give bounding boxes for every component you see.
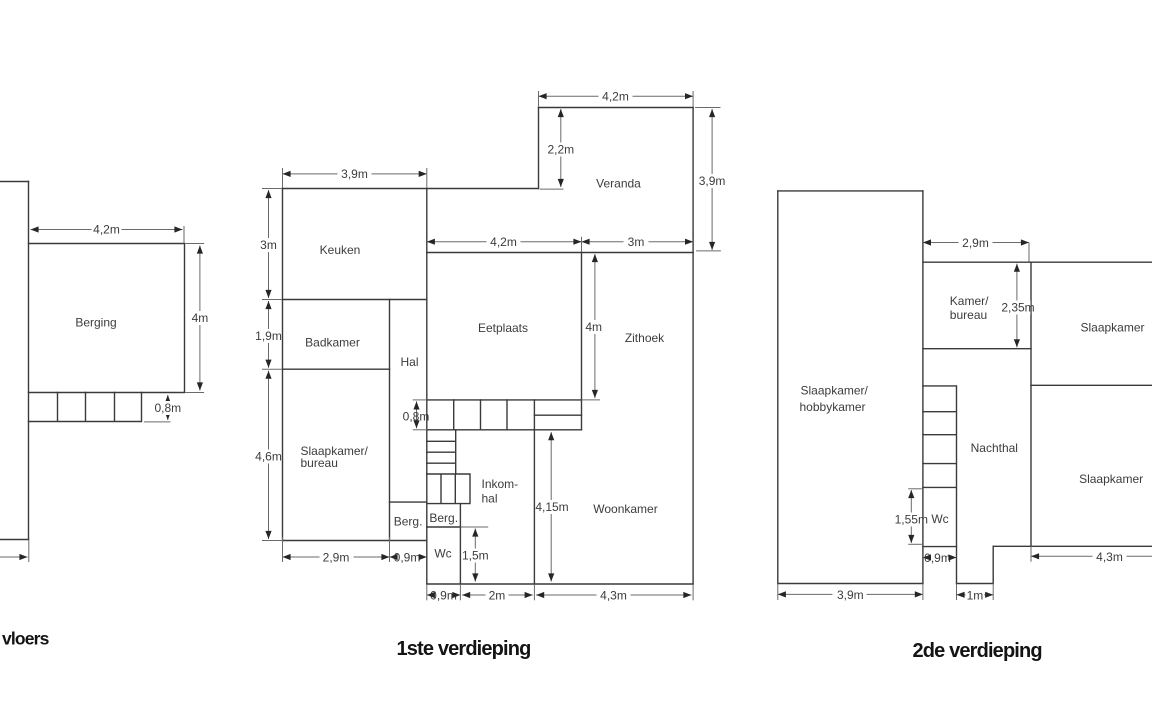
svg-text:1ste verdieping: 1ste verdieping <box>397 638 531 660</box>
svg-text:Wc: Wc <box>931 512 948 526</box>
svg-text:Woonkamer: Woonkamer <box>593 502 657 516</box>
svg-text:Kamer/: Kamer/ <box>950 294 989 308</box>
svg-text:1,9m: 1,9m <box>255 329 282 343</box>
svg-text:2de verdieping: 2de verdieping <box>913 640 1042 662</box>
svg-text:0,9m: 0,9m <box>430 589 457 603</box>
svg-text:4,2m: 4,2m <box>490 235 517 249</box>
svg-text:Eetplaats: Eetplaats <box>478 321 528 335</box>
svg-text:4m: 4m <box>585 320 602 334</box>
svg-text:Veranda: Veranda <box>596 177 641 191</box>
svg-text:0,9m: 0,9m <box>394 551 421 565</box>
svg-text:3,9m: 3,9m <box>341 167 368 181</box>
svg-text:Inkom-: Inkom- <box>482 477 519 491</box>
svg-text:vloers: vloers <box>2 629 50 649</box>
svg-text:Zithoek: Zithoek <box>625 331 665 345</box>
svg-text:4,3m: 4,3m <box>1096 550 1123 564</box>
svg-text:Wc: Wc <box>434 547 451 561</box>
svg-text:4,15m: 4,15m <box>535 500 568 514</box>
svg-text:Berg.: Berg. <box>429 511 458 525</box>
svg-text:3m: 3m <box>260 238 277 252</box>
svg-text:2,9m: 2,9m <box>962 236 989 250</box>
svg-text:1,5m: 1,5m <box>462 549 489 563</box>
svg-text:4,3m: 4,3m <box>600 589 627 603</box>
svg-text:3,9m: 3,9m <box>837 588 864 602</box>
svg-text:hal: hal <box>482 491 498 505</box>
svg-text:Keuken: Keuken <box>320 243 361 257</box>
svg-text:2m: 2m <box>489 589 506 603</box>
svg-text:4,6m: 4,6m <box>255 450 282 464</box>
svg-text:bureau: bureau <box>301 456 338 470</box>
svg-text:4,2m: 4,2m <box>602 90 629 104</box>
svg-text:3m: 3m <box>628 235 645 249</box>
svg-text:4m: 4m <box>192 311 209 325</box>
svg-text:hobbykamer: hobbykamer <box>800 400 866 414</box>
svg-text:1m: 1m <box>967 588 984 602</box>
svg-text:1,55m: 1,55m <box>895 513 928 527</box>
svg-text:4,2m: 4,2m <box>93 223 120 237</box>
svg-text:Slaapkamer: Slaapkamer <box>1079 472 1143 486</box>
svg-text:2,2m: 2,2m <box>547 143 574 157</box>
svg-text:Berging: Berging <box>75 316 116 330</box>
svg-text:Slaapkamer: Slaapkamer <box>1080 320 1144 334</box>
svg-text:Hal: Hal <box>400 355 418 369</box>
svg-text:Badkamer: Badkamer <box>305 336 360 350</box>
svg-text:3,9m: 3,9m <box>699 174 726 188</box>
svg-text:2,9m: 2,9m <box>323 551 350 565</box>
svg-text:0,8m: 0,8m <box>154 401 181 415</box>
svg-text:Nachthal: Nachthal <box>971 441 1018 455</box>
svg-text:0,8m: 0,8m <box>403 410 430 424</box>
svg-text:bureau: bureau <box>950 308 987 322</box>
svg-text:Slaapkamer/: Slaapkamer/ <box>801 383 869 397</box>
svg-text:Berg.: Berg. <box>394 515 423 529</box>
svg-text:2,35m: 2,35m <box>1001 301 1034 315</box>
